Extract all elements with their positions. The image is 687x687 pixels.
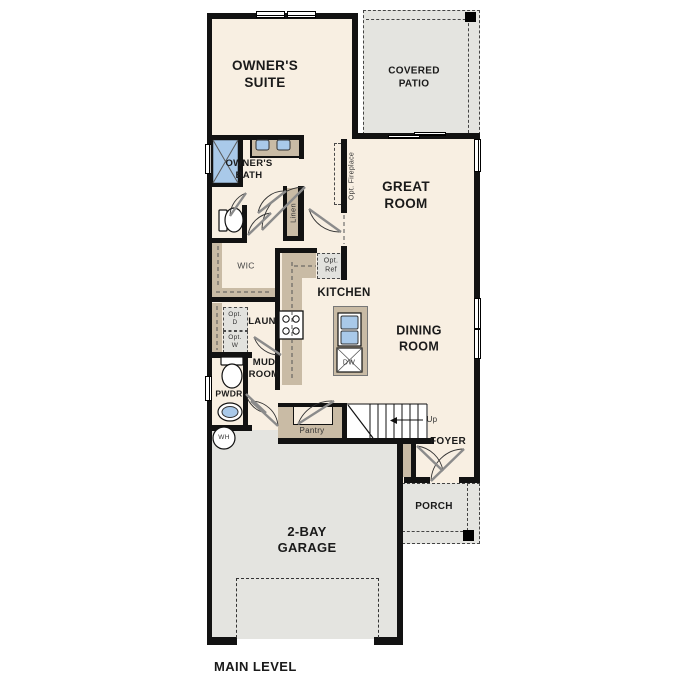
wall xyxy=(341,139,347,213)
wall xyxy=(341,246,347,280)
room-label-covered-patio: COVERED PATIO xyxy=(388,66,440,91)
room-label-porch: PORCH xyxy=(415,501,453,514)
staircase xyxy=(347,404,428,438)
pantry-recess xyxy=(293,407,333,425)
window xyxy=(474,139,481,172)
appliance-label-water-heater: WH xyxy=(218,434,229,442)
patio-inner-dash-right xyxy=(468,13,469,133)
kitchen-counter-vertical xyxy=(282,253,302,385)
wall xyxy=(212,238,247,243)
window xyxy=(474,298,481,329)
wall xyxy=(212,297,278,302)
window xyxy=(287,11,316,18)
wall xyxy=(404,477,430,483)
room-label-owners-suite: OWNER'S SUITE xyxy=(232,58,298,92)
wall xyxy=(342,438,434,444)
window xyxy=(205,144,212,174)
room-label-great-room: GREAT ROOM xyxy=(382,179,430,213)
wall xyxy=(283,236,304,241)
room-label-dining-room: DINING ROOM xyxy=(396,323,442,354)
wall xyxy=(298,186,304,240)
wall xyxy=(278,403,347,407)
room-label-powder: PWDR xyxy=(215,389,242,400)
garage-door-outline xyxy=(236,578,379,638)
option-label-ref: Opt. Ref xyxy=(324,257,338,275)
option-label-washer: Opt. W xyxy=(228,334,241,350)
room-label-wic: WIC xyxy=(237,261,254,272)
plan-title: MAIN LEVEL xyxy=(214,659,297,674)
wall xyxy=(278,438,348,444)
room-label-garage: 2-BAY GARAGE xyxy=(278,524,337,557)
wall xyxy=(212,182,243,187)
window xyxy=(474,329,481,359)
wall xyxy=(342,403,347,443)
wic-shelf-left xyxy=(212,243,222,293)
wall xyxy=(243,357,248,425)
wall xyxy=(212,135,302,140)
patio-inner-dash-top xyxy=(366,19,476,20)
stairs-label-up: Up xyxy=(427,415,438,425)
wall xyxy=(374,637,403,645)
wall xyxy=(277,248,317,253)
option-label-fireplace: Opt. Fireplace xyxy=(349,152,356,200)
room-label-foyer: FOYER xyxy=(430,436,466,449)
option-label-dryer: Opt. D xyxy=(228,311,241,327)
sliding-door xyxy=(414,132,446,136)
room-label-owners-bath: OWNER'S BATH xyxy=(225,158,272,182)
wall xyxy=(283,186,287,240)
wall xyxy=(207,425,252,431)
appliance-label-dishwasher: DW xyxy=(343,360,355,369)
closet-label-pantry: Pantry xyxy=(300,426,325,436)
wall xyxy=(459,477,480,483)
wall xyxy=(207,13,212,643)
wall xyxy=(397,443,403,643)
wall xyxy=(352,13,358,139)
wall xyxy=(207,637,237,645)
laundry-shelf xyxy=(212,303,222,352)
window xyxy=(256,11,285,18)
porch-inner-dash-bottom xyxy=(402,531,468,532)
closet-label-linen: Linen xyxy=(289,203,297,223)
patio-post xyxy=(465,12,476,22)
floor-plan-canvas: OWNER'S SUITE COVERED PATIO OWNER'S BATH… xyxy=(0,0,687,687)
porch-post xyxy=(463,530,474,541)
room-label-mud-room: MUD ROOM xyxy=(249,357,280,381)
window xyxy=(205,376,212,401)
foyer-closet xyxy=(403,443,411,477)
wall xyxy=(299,135,304,159)
room-label-laundry: LAUN xyxy=(248,316,276,328)
room-label-kitchen: KITCHEN xyxy=(317,286,370,300)
